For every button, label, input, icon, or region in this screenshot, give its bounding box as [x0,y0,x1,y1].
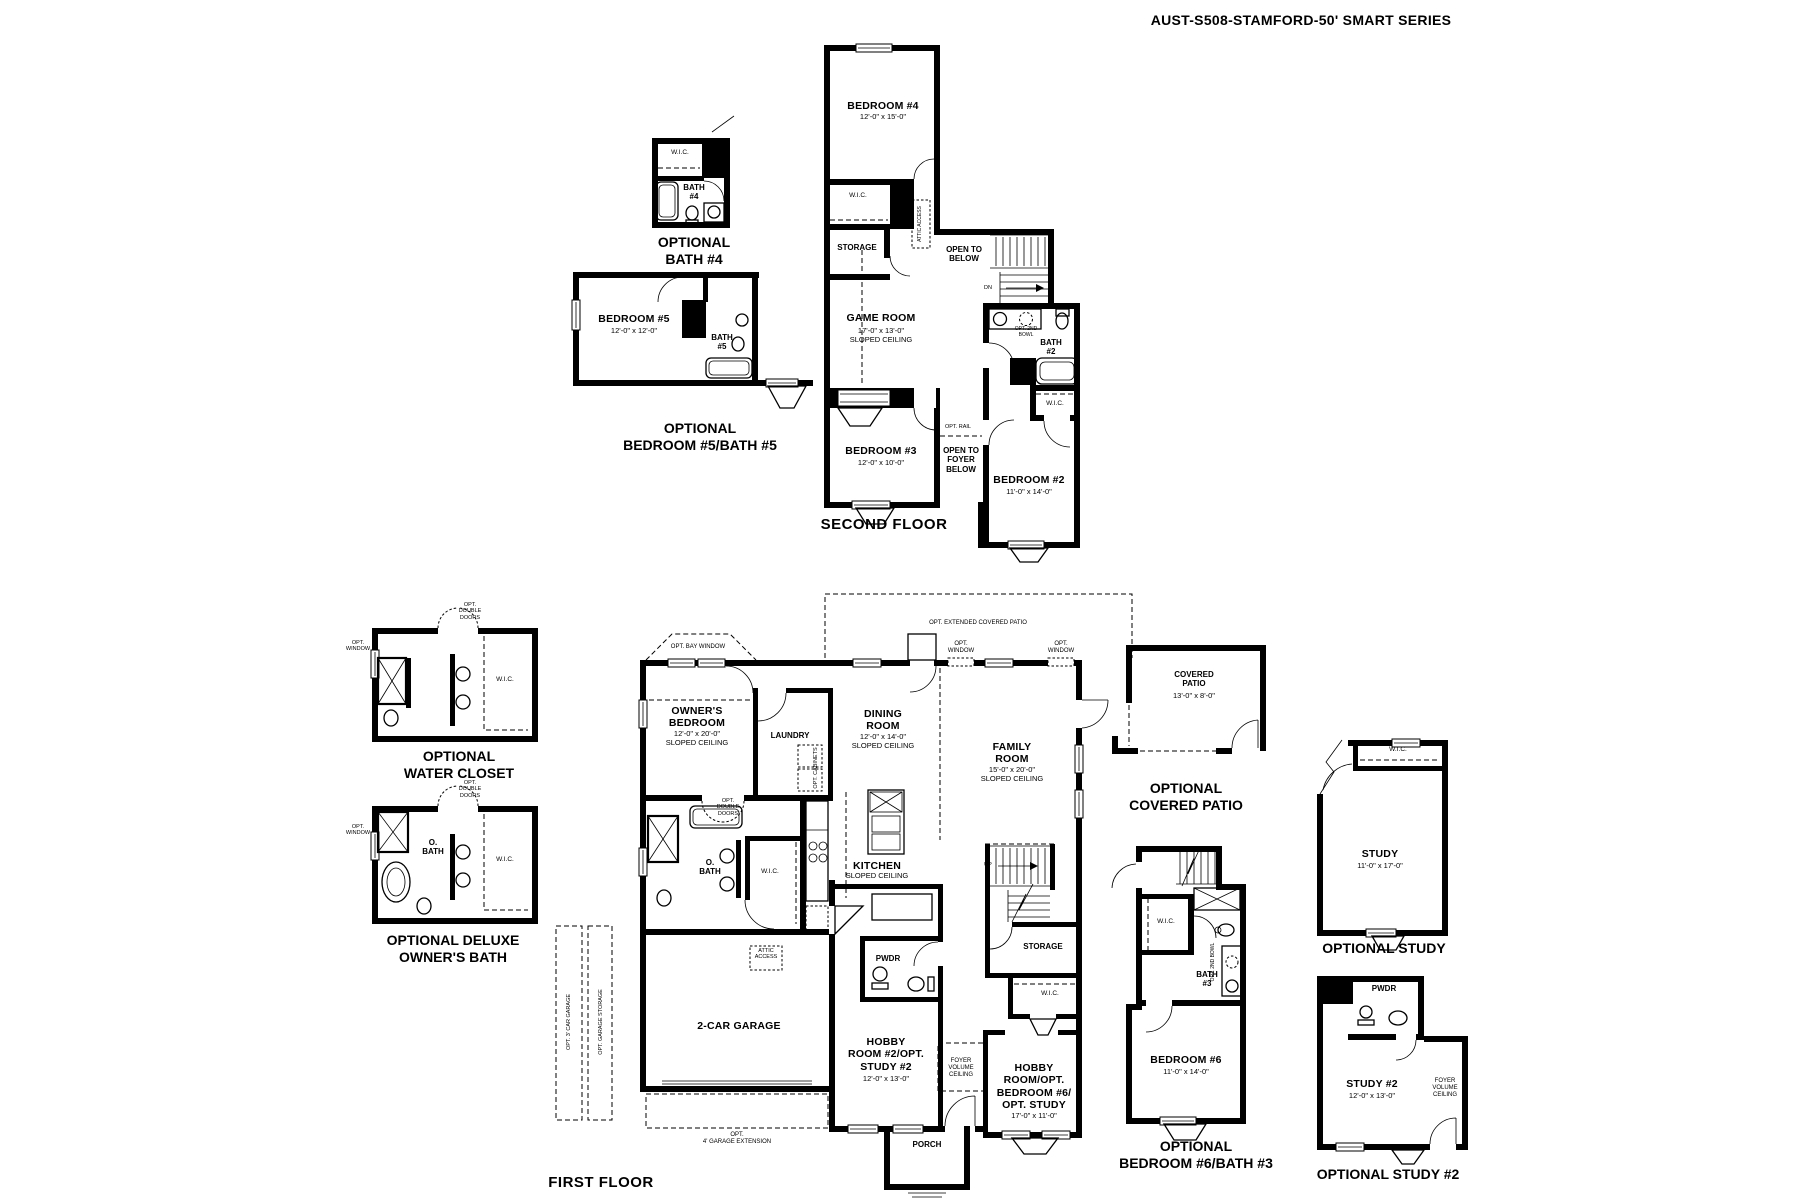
floorplan-canvas: AUST-S508-STAMFORD-50' SMART SERIES BEDR… [0,0,1800,1200]
room-label-garage: 2-CAR GARAGE [697,1020,781,1032]
room-label-bath4: BATH #4 [683,183,705,202]
room-label-wic-bedroom4: W.I.C. [849,192,867,200]
room-label-family: FAMILY ROOM [993,741,1032,766]
note-opt-double-doors-ff: OPT. DOUBLE DOORS [717,798,740,817]
room-dims-dining: 12'-0" x 14'-0" SLOPED CEILING [852,733,915,751]
note-opt-extended-patio: OPT. EXTENDED COVERED PATIO [929,620,1027,627]
room-label-porch: PORCH [913,1140,942,1149]
room-dims-owners-bedroom: 12'-0" x 20'-0" SLOPED CEILING [666,730,729,748]
inset-label-bath4: OPTIONAL BATH #4 [658,234,730,267]
inset-bath4 [652,116,734,228]
room-dims-hobby: 17'-0" x 11'-0" [1011,1112,1057,1121]
room-label-pwdr-study2: PWDR [1372,984,1396,993]
inset-bedroom6-bath3 [1112,846,1246,1140]
inset-deluxe-owners-bath [371,786,538,924]
room-label-storage-2f: STORAGE [837,243,876,252]
room-label-bedroom6: BEDROOM #6 [1150,1054,1221,1066]
note-opt-garage-storage: OPT. GARAGE STORAGE [598,989,604,1055]
note-opt-window-1: OPT. WINDOW [948,641,974,655]
room-label-study2: STUDY #2 [1346,1078,1398,1090]
page-title: AUST-S508-STAMFORD-50' SMART SERIES [1151,12,1452,29]
room-label-game-room: GAME ROOM [847,312,916,324]
room-dims-bedroom5: 12'-0" x 12'-0" [611,327,657,336]
room-label-pwdr: PWDR [876,954,900,963]
note-attic-access-ff: ATTIC ACCESS [755,948,778,961]
note-stairs-dn: DN [984,285,992,291]
room-label-laundry: LAUNDRY [771,731,810,740]
room-dims-bedroom6: 11'-0" x 14'-0" [1163,1068,1209,1077]
inset-water-closet [371,608,538,742]
room-label-wic-bath4: W.I.C. [671,149,689,157]
note-opt-double-doors-deluxe: OPT. DOUBLE DOORS [459,780,482,799]
floorplan-linework [0,0,1800,1200]
room-dims-family: 15'-0" x 20'-0" SLOPED CEILING [981,766,1044,784]
room-label-bedroom4: BEDROOM #4 [847,100,918,112]
room-dims-bedroom3: 12'-0" x 10'-0" [858,459,904,468]
note-opt-rail: OPT. RAIL [945,424,971,430]
inset-bedroom5-bath5 [572,272,813,408]
room-label-covered-patio: COVERED PATIO [1174,670,1214,689]
room-dims-covered-patio: 13'-0" x 8'-0" [1173,692,1215,701]
note-opt-3car-garage: OPT. 3' CAR GARAGE [566,994,572,1050]
room-note-kitchen: SLOPED CEILING [846,872,909,881]
inset-study [1317,739,1448,950]
room-label-wic-hobby: W.I.C. [1041,990,1059,998]
note-attic-access-2f: ATTIC ACCESS [918,206,924,242]
room-dims-game-room: 17'-0" x 13'-0" SLOPED CEILING [850,327,913,345]
room-label-wic-deluxe: W.I.C. [496,856,514,864]
room-label-wic-owner: W.I.C. [761,868,779,876]
room-label-wic-bedroom6: W.I.C. [1157,918,1175,926]
inset-label-bedroom6-bath3: OPTIONAL BEDROOM #6/BATH #3 [1119,1138,1273,1171]
room-label-hobby2: HOBBY ROOM #2/OPT. STUDY #2 [848,1036,924,1073]
note-opt-double-doors-wc: OPT. DOUBLE DOORS [459,602,482,621]
note-foyer-volume: FOYER VOLUME CEILING [948,1058,973,1079]
inset-label-study: OPTIONAL STUDY [1322,940,1445,957]
note-open-to-below: OPEN TO BELOW [946,245,982,264]
note-opt-bay-window: OPT. BAY WINDOW [671,644,725,651]
room-label-obath-deluxe: O. BATH [422,838,444,857]
floor-label-second: SECOND FLOOR [821,516,948,534]
inset-study2 [1317,976,1468,1164]
note-opt-garage-extension: OPT. 4' GARAGE EXTENSION [703,1132,771,1146]
note-stairs-up: UP [984,862,992,868]
inset-label-water-closet: OPTIONAL WATER CLOSET [404,748,514,781]
room-label-obath: O. BATH [699,858,721,877]
note-opt-2nd-bowl-bath2: OPT. 2ND BOWL [1015,327,1038,339]
note-open-to-foyer: OPEN TO FOYER BELOW [943,446,979,474]
note-opt-window-2: OPT. WINDOW [1048,641,1074,655]
floor-label-first: FIRST FLOOR [548,1174,654,1192]
room-label-bedroom5: BEDROOM #5 [598,313,669,325]
inset-label-bedroom5-bath5: OPTIONAL BEDROOM #5/BATH #5 [623,420,777,453]
room-label-bath5: BATH #5 [711,333,733,352]
room-label-hobby: HOBBY ROOM/OPT. BEDROOM #6/ OPT. STUDY [997,1062,1072,1112]
room-dims-study2: 12'-0" x 13'-0" [1349,1092,1395,1101]
room-dims-study: 11'-0" x 17'-0" [1357,862,1403,871]
room-label-wic-wc: W.I.C. [496,676,514,684]
room-label-bedroom2: BEDROOM #2 [993,474,1064,486]
room-label-bedroom3: BEDROOM #3 [845,445,916,457]
room-label-bath2: BATH #2 [1040,338,1062,357]
room-label-study: STUDY [1362,848,1399,860]
inset-label-deluxe-bath: OPTIONAL DELUXE OWNER'S BATH [387,932,520,965]
room-label-wic-study: W.I.C. [1389,746,1407,754]
room-dims-hobby2: 12'-0" x 13'-0" [863,1075,909,1084]
note-foyer-volume-study2: FOYER VOLUME CEILING [1432,1078,1457,1099]
note-opt-window-wc: OPT. WINDOW [346,640,370,653]
room-dims-bedroom2: 11'-0" x 14'-0" [1006,488,1052,497]
note-opt-cabinets: OPT. CABINETS [813,747,819,788]
room-label-storage-ff: STORAGE [1023,942,1062,951]
inset-label-covered-patio: OPTIONAL COVERED PATIO [1129,780,1243,813]
room-dims-bedroom4: 12'-0" x 15'-0" [860,113,906,122]
room-label-dining: DINING ROOM [864,708,902,733]
room-label-wic-bedroom2: W.I.C. [1046,400,1064,408]
room-label-bath3: BATH #3 [1196,970,1218,989]
inset-label-study2: OPTIONAL STUDY #2 [1317,1166,1460,1183]
note-opt-window-deluxe: OPT. WINDOW [346,824,370,837]
room-label-owners-bedroom: OWNER'S BEDROOM [669,705,725,730]
